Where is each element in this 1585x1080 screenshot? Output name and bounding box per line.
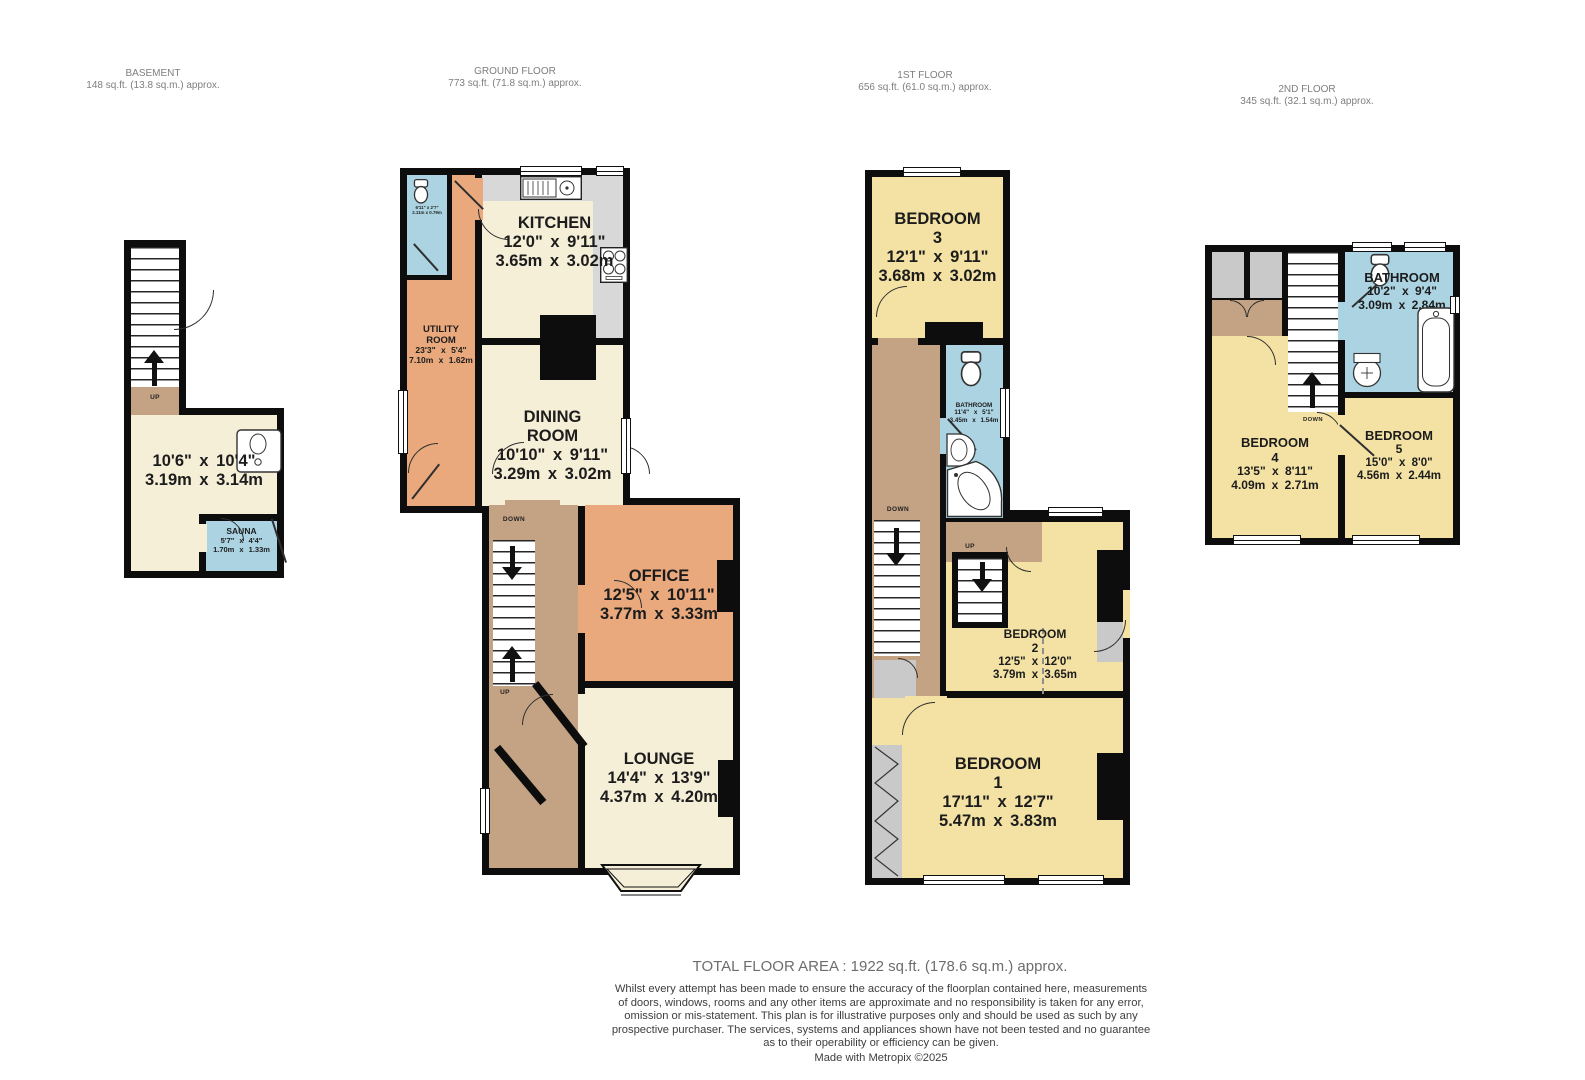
first-title: 1ST FLOOR [825,70,1025,82]
bedroom2-m: 3.79m x 3.65m [960,669,1110,682]
second-title: 2ND FLOOR [1207,84,1407,96]
bathroom1-m: 3.45m x 1.54m [944,417,1004,424]
credit-line: Made with Metropix ©2025 [556,1052,1206,1064]
basement-up-label: UP [131,394,179,401]
window [596,166,624,176]
window [1450,296,1460,314]
ground-header: GROUND FLOOR 773 sq.ft. (71.8 sq.m.) app… [415,66,615,89]
bedroom3-m: 3.68m x 3.02m [872,267,1003,286]
lounge-label: LOUNGE 14'4" x 13'9" 4.37m x 4.20m [585,750,733,807]
bathroom1-label: BATHROOM 11'4" x 5'1" 3.45m x 1.54m [944,402,1004,424]
window [923,875,1005,885]
ground-title: GROUND FLOOR [415,66,615,78]
bedroom1-num: 1 [890,774,1106,793]
window [621,418,631,474]
kitchen-ft: 12'0" x 9'11" [482,233,627,252]
bedroom3-ft: 12'1" x 9'11" [872,248,1003,267]
basement-area: 148 sq.ft. (13.8 sq.m.) approx. [53,80,253,92]
first-down-label: DOWN [868,506,928,513]
window [1233,535,1301,545]
up-arrow-icon [144,350,164,386]
bedroom4-label: BEDROOM 4 13'5" x 8'11" 4.09m x 2.71m [1212,435,1338,493]
lounge-m: 4.37m x 4.20m [585,788,733,807]
toilet-icon [412,178,430,205]
bedroom4-ft: 13'5" x 8'11" [1212,465,1338,479]
dining-name2: ROOM [482,427,623,446]
ground-down-label: DOWN [486,516,542,523]
basement-landing [131,387,179,415]
total-floor-area: TOTAL FLOOR AREA : 1922 sq.ft. (178.6 sq… [480,958,1280,975]
bedroom4-m: 4.09m x 2.71m [1212,479,1338,493]
basement-room-label: 10'6" x 10'4" 3.19m x 3.14m [131,452,277,490]
bedroom1-name: BEDROOM [890,755,1106,774]
down-arrow-icon [502,546,522,580]
window [1038,875,1104,885]
basement-dims-m: 3.19m x 3.14m [131,471,277,490]
window [480,788,490,834]
bedroom1-ft: 17'11" x 12'7" [890,793,1106,812]
first-area: 656 sq.ft. (61.0 sq.m.) approx. [825,82,1025,94]
up-arrow-icon [502,646,522,682]
basement-header: BASEMENT 148 sq.ft. (13.8 sq.m.) approx. [53,68,253,91]
bedroom5-label: BEDROOM 5 15'0" x 8'0" 4.56m x 2.44m [1345,428,1453,484]
dining-patch [482,345,540,380]
office-name: OFFICE [585,567,733,586]
bedroom1-m: 5.47m x 3.83m [890,812,1106,831]
utility-m: 7.10m x 1.62m [407,356,475,366]
window [1000,388,1010,438]
sauna-m: 1.70m x 1.33m [206,546,277,555]
bedroom3-label: BEDROOM 3 12'1" x 9'11" 3.68m x 3.02m [872,210,1003,287]
office-label: OFFICE 12'5" x 10'11" 3.77m x 3.33m [585,567,733,624]
ground-up-label: UP [483,689,527,696]
wc-label: 6'11" x 2'7" 2.11m x 0.79m [408,205,446,215]
bathroom1-name: BATHROOM [944,402,1004,409]
window [520,166,582,176]
bedroom5-ft: 15'0" x 8'0" [1345,457,1453,470]
bedroom2-label: BEDROOM 2 12'5" x 12'0" 3.79m x 3.65m [960,628,1110,682]
kitchen-sink-icon [520,176,582,200]
office-ft: 12'5" x 10'11" [585,586,733,605]
bedroom2-ft: 12'5" x 12'0" [960,656,1110,669]
window [398,390,408,454]
bedroom3-num: 3 [872,229,1003,248]
basin-icon [1350,352,1384,390]
up-arrow-icon [1302,372,1322,408]
utility-name1: UTILITY [407,324,475,335]
kitchen-name: KITCHEN [482,214,627,233]
window [1352,242,1392,252]
second-closet-right [1250,252,1282,298]
kitchen-m: 3.65m x 3.02m [482,252,627,271]
bedroom2-name: BEDROOM [960,628,1110,642]
basement-title: BASEMENT [53,68,253,80]
disclaimer-text: Whilst every attempt has been made to en… [556,983,1206,1051]
bedroom5-m: 4.56m x 2.44m [1345,470,1453,483]
second-closet-left [1212,252,1244,298]
chimney-breast-lower [540,345,596,380]
ground-area: 773 sq.ft. (71.8 sq.m.) approx. [415,78,615,90]
first-header: 1ST FLOOR 656 sq.ft. (61.0 sq.m.) approx… [825,70,1025,93]
bathroom2-ft: 10'2" x 9'4" [1352,285,1452,299]
bedroom5-door-opening [1338,415,1345,455]
first-up-label: UP [950,543,990,550]
bathroom2-name: BATHROOM [1352,270,1452,285]
bedroom4-num: 4 [1212,450,1338,465]
bedroom2-num: 2 [960,642,1110,656]
toilet-icon [958,350,984,388]
bay-window [586,862,716,898]
corner-bath-icon [946,460,1003,518]
basement-dims-ft: 10'6" x 10'4" [131,452,277,471]
down-arrow-icon [886,528,906,566]
lounge-name: LOUNGE [585,750,733,769]
bedroom5-num: 5 [1345,443,1453,457]
bedroom4-name: BEDROOM [1212,435,1338,450]
down-arrow-icon [972,562,992,592]
window [1048,507,1103,517]
dining-name1: DINING [482,408,623,427]
bath-icon [1417,307,1455,393]
floorplan-canvas: BASEMENT 148 sq.ft. (13.8 sq.m.) approx.… [0,0,1585,1080]
bathroom2-door-opening [1338,302,1345,340]
window [1352,535,1420,545]
kitchen-label: KITCHEN 12'0" x 9'11" 3.65m x 3.02m [482,214,627,271]
window [1404,242,1446,252]
window [903,167,961,177]
second-header: 2ND FLOOR 345 sq.ft. (32.1 sq.m.) approx… [1207,84,1407,107]
bedroom5-name: BEDROOM [1345,428,1453,443]
wc-m: 2.11m x 0.79m [408,210,446,215]
bedroom1-label: BEDROOM 1 17'11" x 12'7" 5.47m x 3.83m [890,755,1106,832]
lounge-ft: 14'4" x 13'9" [585,769,733,788]
bedroom3-name: BEDROOM [872,210,1003,229]
utility-label: UTILITY ROOM 23'3" x 5'4" 7.10m x 1.62m [407,324,475,366]
sauna-label: SAUNA 5'7" x 4'4" 1.70m x 1.33m [206,527,277,554]
bathroom1-ft: 11'4" x 5'1" [944,409,1004,416]
office-m: 3.77m x 3.33m [585,605,733,624]
second-area: 345 sq.ft. (32.1 sq.m.) approx. [1207,96,1407,108]
